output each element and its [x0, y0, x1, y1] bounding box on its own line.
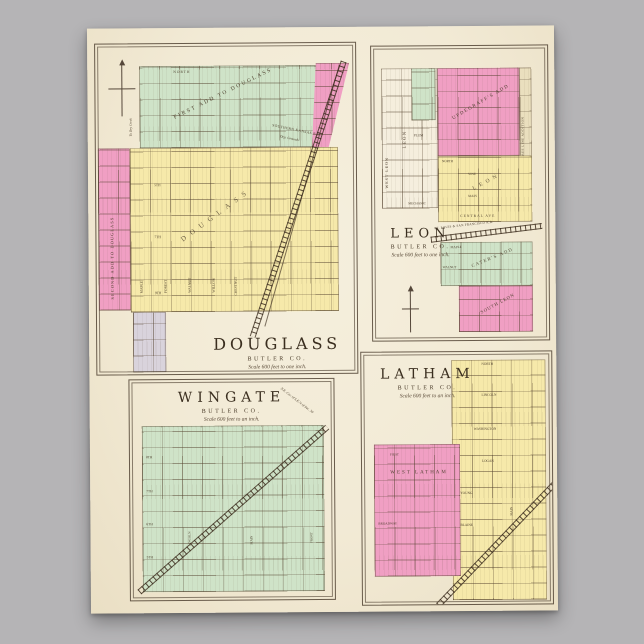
douglass-plat-map: FIRST ADD TO DOUGLASS SECOND ADD TO DOUG…: [94, 42, 358, 376]
douglass-title-block: DOUGLASS BUTLER CO. Scale 600 feet to on…: [207, 334, 347, 371]
street-label: 5TH: [147, 556, 153, 560]
leon-county: BUTLER CO.: [374, 244, 466, 251]
scene: FIRST ADD TO DOUGLASS SECOND ADD TO DOUG…: [0, 0, 644, 644]
latham-title: LATHAM: [369, 366, 485, 383]
wingate-county: BUTLER CO.: [162, 408, 302, 415]
section-west-latham: [374, 444, 461, 577]
section-label-bee-line: BEE LINE ADDITION: [521, 74, 525, 156]
street-label: YOUNG: [460, 492, 472, 495]
street-label: WILLOW: [213, 259, 217, 293]
latham-plat-map: LATHAM BUTLER CO. Scale 600 feet to an i…: [360, 350, 554, 605]
map-edge-note: To Dry Creek: [129, 94, 133, 136]
street-label: BLAINE: [460, 524, 472, 527]
street-label: VINE: [468, 173, 476, 176]
street-label: 6TH: [146, 523, 152, 527]
street-label: MAPLE: [141, 259, 145, 293]
wingate-scale: Scale 600 feet to an inch.: [162, 416, 302, 423]
section-updegraffs-addition: [437, 68, 520, 157]
section-small-addition: [133, 312, 166, 372]
atlas-poster: FIRST ADD TO DOUGLASS SECOND ADD TO DOUG…: [87, 25, 558, 613]
street-label: FIRST: [390, 453, 399, 456]
leon-scale: Scale 600 feet to one inch.: [375, 252, 467, 259]
douglass-title: DOUGLASS: [207, 334, 347, 354]
street-label: PLUM: [414, 134, 423, 137]
compass-icon: [107, 60, 137, 118]
latham-title-block: LATHAM BUTLER CO. Scale 600 feet to an i…: [369, 366, 485, 400]
douglass-scale: Scale 600 feet to one inch.: [207, 364, 347, 371]
latham-county: BUTLER CO.: [369, 385, 485, 392]
compass-icon: [401, 286, 421, 334]
leon-title-block: LEON BUTLER CO. Scale 600 feet to one in…: [374, 226, 466, 259]
street-label-central-ave: CENTRAL AVE: [460, 215, 495, 219]
street-label: 9TH: [155, 292, 162, 296]
section-label-leon: LEON: [403, 104, 408, 148]
street-label: CHESTNUT: [235, 256, 239, 296]
wingate-plat-map: WINGATE BUTLER CO. Scale 600 feet to an …: [128, 378, 336, 601]
street-label: NORTH: [442, 160, 453, 163]
street-label: WALNUT: [189, 259, 193, 293]
street-label: MAIN: [250, 522, 253, 544]
street-label: LOGAN: [482, 460, 494, 463]
wingate-title-block: WINGATE BUTLER CO. Scale 600 feet to an …: [161, 389, 301, 423]
latham-scale: Scale 600 feet to an inch.: [370, 393, 486, 400]
street-label-north: NORTH: [173, 71, 190, 75]
douglass-county: BUTLER CO.: [207, 356, 347, 363]
street-label: 8TH: [146, 456, 152, 460]
section-north-addition: [411, 68, 435, 120]
street-label: MAIN: [468, 195, 477, 198]
street-label: MAIN: [510, 494, 513, 516]
leon-title: LEON: [374, 226, 466, 242]
section-label-west-leon: WEST LEON: [385, 125, 389, 189]
street-label: 7TH: [154, 236, 161, 240]
wingate-title: WINGATE: [161, 389, 301, 406]
street-label: WASHINGTON: [474, 428, 497, 432]
section-label-west-latham: WEST LATHAM: [384, 470, 454, 475]
street-label: 7TH: [146, 490, 152, 494]
street-label: LINCOLN: [188, 518, 191, 546]
leon-plat-map: WEST LEON LEON UPDEGRAFF'S ADD BEE LINE …: [370, 44, 550, 341]
street-label: BROADWAY: [378, 522, 397, 525]
street-label: WALNUT: [443, 266, 457, 269]
street-label: MECHANIC: [408, 202, 426, 205]
street-label: FOREST: [165, 259, 169, 293]
street-label: 5TH: [154, 184, 161, 188]
street-label: FRONT: [310, 519, 313, 543]
